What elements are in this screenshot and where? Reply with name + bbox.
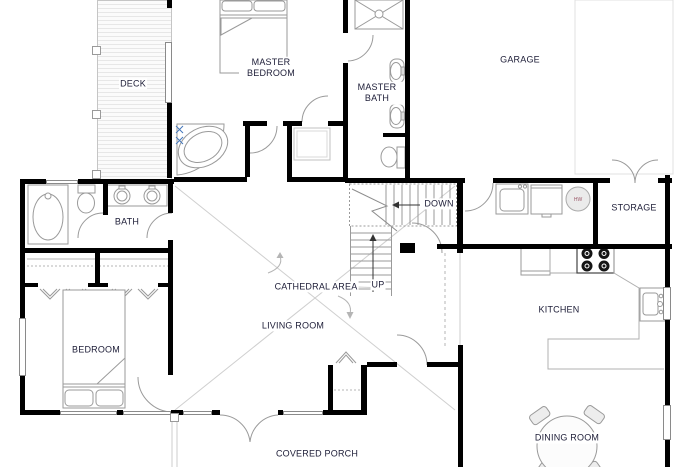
deck-post [92, 110, 101, 119]
label-covered-porch: COVERED PORCH [275, 448, 359, 459]
washer [496, 184, 528, 214]
double-sink-vanity [107, 185, 167, 206]
wall-segment [343, 63, 348, 178]
wall-segment [400, 243, 415, 253]
label-cathedral-area: CATHEDRAL AREA [274, 281, 359, 292]
window [19, 318, 26, 376]
window [663, 405, 671, 440]
wall-segment [78, 179, 174, 184]
window [663, 287, 671, 320]
wall-segment [493, 178, 593, 183]
cathedral-ceiling-lines [175, 186, 455, 410]
wall-segment [245, 122, 250, 177]
corner-tub [171, 118, 235, 176]
deck-boards [97, 0, 172, 181]
kitchen-sink [640, 288, 665, 321]
floor-plan: DECK MASTER BEDROOM MASTER BATH GARAGE D… [0, 0, 700, 467]
wall-segment [20, 376, 25, 415]
wall-segment [361, 365, 367, 415]
wall-segment [405, 0, 410, 183]
range-4-burner [577, 246, 614, 273]
shower [355, 0, 403, 29]
label-kitchen: KITCHEN [538, 304, 581, 315]
deck-post [92, 46, 101, 55]
bathtub [28, 185, 68, 244]
label-water-heater: HW [573, 197, 583, 203]
label-dining-room: DINING ROOM [534, 432, 600, 443]
dryer [531, 185, 562, 217]
master-bath-toilet [381, 147, 405, 168]
window [46, 180, 78, 184]
label-down: DOWN [423, 198, 454, 209]
wall-segment [212, 410, 220, 415]
wall-segment [458, 364, 463, 467]
wall-segment [345, 178, 457, 183]
label-bedroom: BEDROOM [71, 344, 121, 355]
window [283, 411, 323, 415]
wall-segment [457, 183, 463, 253]
wall-segment [168, 183, 173, 213]
wall-segment [95, 253, 100, 287]
wall-segment [593, 183, 598, 244]
wall-segment [287, 122, 292, 177]
wall-segment [20, 410, 60, 415]
wall-segment [167, 0, 172, 8]
wall-segment [367, 362, 397, 367]
master-bath-sink [390, 104, 405, 128]
wall-segment [458, 345, 463, 364]
wall-segment [283, 121, 302, 126]
refrigerator [521, 247, 550, 275]
window [183, 411, 212, 415]
garage-bay-outline [575, 0, 673, 174]
window [123, 411, 171, 415]
wall-segment [287, 177, 345, 182]
label-bath: BATH [114, 216, 140, 227]
label-up: UP [371, 279, 386, 290]
deck-post [92, 170, 101, 179]
wall-segment [167, 103, 172, 178]
wall-segment [328, 365, 333, 415]
wall-segment [593, 244, 672, 249]
wall-segment [343, 0, 348, 33]
label-storage: STORAGE [610, 202, 657, 213]
label-deck: DECK [119, 78, 147, 89]
bath-toilet [78, 185, 96, 213]
wall-segment [103, 183, 108, 215]
wall-segment [665, 175, 670, 287]
window [60, 411, 117, 415]
label-master-bath: MASTER BATH [351, 82, 403, 105]
wall-segment [168, 240, 173, 375]
master-bath-sink [390, 59, 405, 83]
wall-segment [25, 283, 38, 287]
wall-segment [174, 177, 247, 182]
wall-segment [665, 320, 670, 405]
label-master-bedroom: MASTER BEDROOM [239, 57, 303, 80]
kitchen-cabinet [550, 248, 578, 273]
porch-post [170, 413, 179, 422]
wall-segment [20, 179, 25, 318]
window [165, 42, 172, 103]
wall-segment [665, 440, 670, 467]
label-living-room: LIVING ROOM [261, 320, 325, 331]
wall-segment [25, 179, 46, 184]
label-garage: GARAGE [499, 54, 541, 65]
